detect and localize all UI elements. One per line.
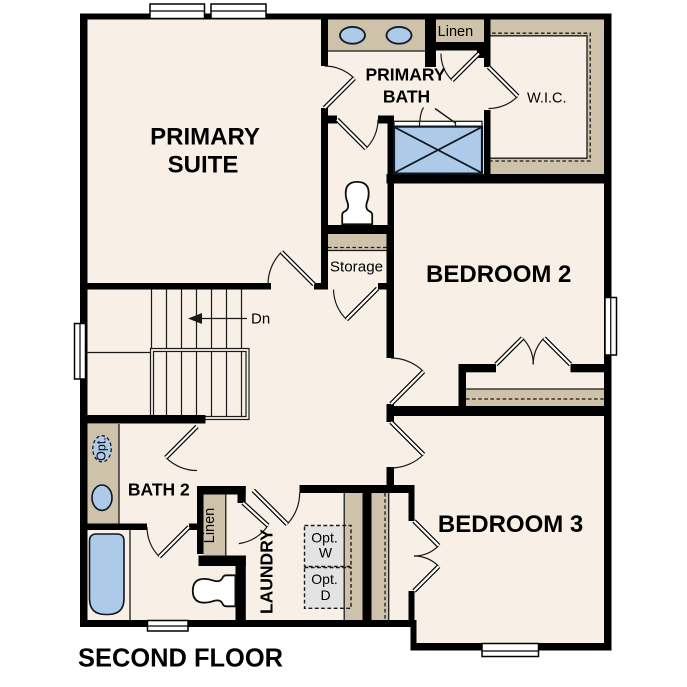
svg-text:Dn: Dn: [251, 311, 270, 328]
svg-text:SUITE: SUITE: [168, 151, 239, 178]
svg-text:BATH 2: BATH 2: [128, 480, 190, 500]
svg-text:W: W: [319, 545, 333, 561]
svg-text:Linen: Linen: [202, 508, 218, 543]
svg-text:BATH: BATH: [383, 87, 430, 107]
svg-text:LAUNDRY: LAUNDRY: [257, 529, 277, 614]
svg-text:Opt.: Opt.: [311, 571, 337, 587]
svg-text:PRIMARY: PRIMARY: [365, 65, 445, 85]
svg-text:Opt.: Opt.: [311, 530, 337, 546]
svg-text:W.I.C.: W.I.C.: [527, 91, 566, 107]
svg-text:Linen: Linen: [438, 24, 473, 40]
svg-text:PRIMARY: PRIMARY: [150, 123, 260, 150]
svg-text:Opt.: Opt.: [95, 437, 109, 461]
svg-text:BEDROOM 3: BEDROOM 3: [438, 511, 583, 538]
svg-text:SECOND FLOOR: SECOND FLOOR: [78, 643, 283, 673]
svg-text:Storage: Storage: [330, 259, 383, 276]
svg-text:D: D: [320, 587, 330, 603]
svg-text:BEDROOM 2: BEDROOM 2: [426, 261, 571, 288]
